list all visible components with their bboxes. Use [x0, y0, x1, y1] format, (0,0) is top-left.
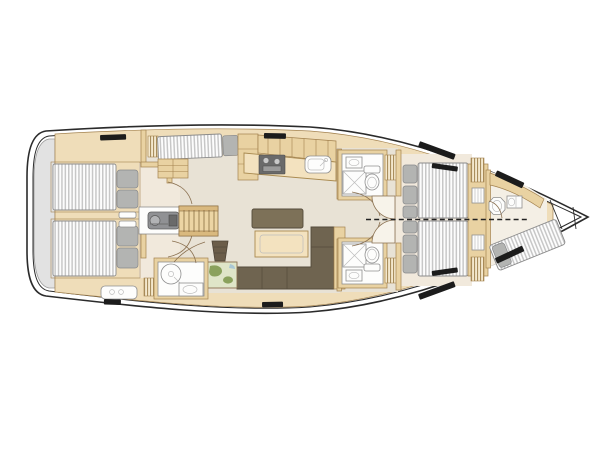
toilet	[364, 247, 380, 271]
hanging-locker	[472, 235, 484, 250]
washbasin	[179, 283, 203, 296]
hanging-locker	[472, 188, 484, 203]
settee-cushion	[158, 134, 223, 160]
cabin-bulkhead	[141, 234, 146, 258]
pillow	[117, 190, 138, 208]
deck-hatch	[100, 134, 126, 140]
galley	[238, 134, 336, 181]
yacht-floorplan-stage: Sailing yacht interior layout plan (top-…	[0, 0, 600, 450]
engine-detail	[169, 215, 177, 226]
navigator-seat	[212, 241, 228, 261]
louvered-locker	[148, 136, 158, 157]
washbasin	[507, 196, 522, 208]
cabin-bulkhead	[141, 130, 146, 163]
shower	[343, 244, 366, 267]
chart-table	[205, 262, 237, 288]
deck-hatch	[104, 299, 121, 305]
shower	[161, 264, 181, 284]
stern-fitting	[101, 286, 137, 299]
double-berth	[53, 221, 116, 276]
aft-bulkhead	[396, 150, 401, 196]
washbasin	[346, 157, 362, 168]
berth-port	[418, 163, 468, 218]
berth-starboard	[418, 221, 468, 276]
deck-hatch	[264, 133, 286, 139]
pillow	[117, 170, 138, 188]
pillows-starboard	[403, 221, 417, 273]
stove	[259, 155, 285, 174]
louvered-locker	[385, 155, 397, 180]
engine-room	[139, 207, 181, 234]
galley-sink	[305, 156, 331, 173]
double-berth	[53, 164, 116, 210]
louvered-locker	[385, 258, 397, 283]
louvered-locker	[144, 278, 155, 296]
shower	[343, 171, 366, 194]
port-settee	[158, 133, 239, 159]
yacht-floorplan-diagram: Sailing yacht interior layout plan (top-…	[0, 0, 600, 450]
forward-bench	[252, 209, 303, 228]
settee-pillow	[223, 135, 239, 156]
washbasin	[346, 270, 362, 281]
pillows-port	[403, 165, 417, 218]
pillow	[117, 248, 138, 268]
toilet	[364, 166, 380, 190]
deck-hatch	[262, 302, 283, 308]
companionway	[179, 206, 218, 236]
aft-bulkhead	[396, 243, 401, 290]
pillow	[117, 226, 138, 246]
settee-drawers	[158, 159, 188, 178]
swim-platform	[34, 139, 55, 288]
